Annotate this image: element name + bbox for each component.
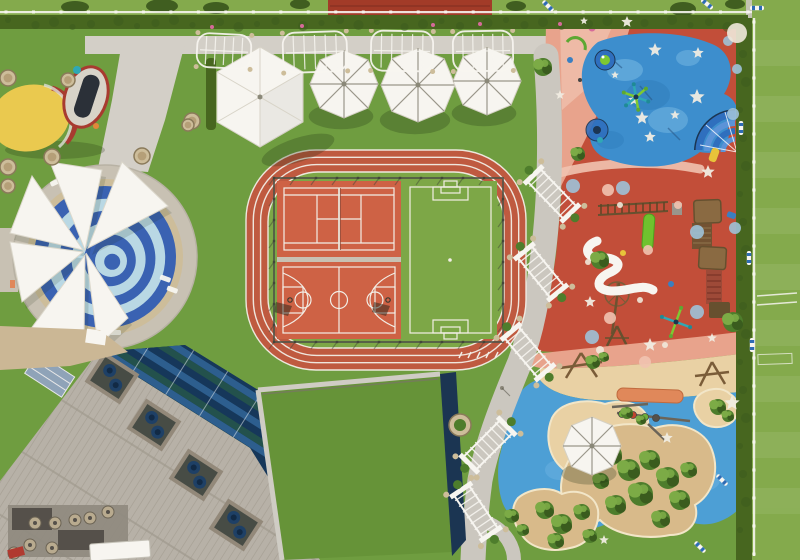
pole-stripe — [750, 347, 754, 350]
dot-white — [637, 297, 643, 303]
hedge-blob — [32, 21, 40, 29]
tower-roof — [694, 200, 722, 224]
hedge-blob — [418, 19, 428, 29]
dot-salmon — [602, 184, 614, 196]
aerial-photo-school-sports-complex — [0, 0, 800, 560]
spinner-tip — [660, 315, 664, 319]
planter-fill — [4, 163, 13, 172]
light-pole — [750, 6, 764, 10]
umbrella-hub — [416, 83, 421, 88]
light-pole — [739, 121, 743, 135]
planter-fill — [64, 76, 72, 84]
bush-sprig — [627, 461, 636, 470]
hedge-blob — [272, 17, 280, 25]
spinner-tip — [632, 82, 636, 86]
planter-fill — [138, 152, 147, 161]
hedge-blob — [641, 19, 649, 27]
bush-sprig — [577, 148, 583, 154]
hedge-blob — [169, 15, 179, 25]
flower-dot — [431, 23, 435, 27]
hedge-blob — [87, 20, 95, 28]
hedge-blob — [739, 302, 747, 310]
flower-dot — [558, 22, 562, 26]
fence-post — [753, 105, 756, 108]
pole-stripe — [752, 6, 755, 10]
tree-canopy — [506, 1, 526, 11]
hedge-blob — [741, 161, 751, 171]
pole-stripe — [747, 260, 751, 263]
planter-fill — [454, 419, 466, 431]
hedge-blob — [739, 134, 747, 142]
hedge-blob — [739, 386, 747, 394]
hedge-blob — [134, 23, 140, 29]
bush-sprig — [716, 401, 722, 407]
hedge-blob — [705, 18, 713, 26]
fence-post — [499, 11, 502, 14]
hedge-blob — [737, 275, 743, 281]
fence-post — [417, 11, 420, 14]
bush-sprig — [560, 516, 568, 524]
hedge-blob — [152, 19, 160, 27]
hedge-blob — [741, 77, 751, 87]
hedge-blob — [70, 24, 76, 30]
bush-sprig — [648, 452, 656, 460]
fence-post — [753, 469, 756, 472]
fence-post — [279, 11, 282, 14]
planter-fill — [185, 122, 192, 129]
hedge-blob — [456, 22, 464, 30]
hedge-blob — [739, 50, 747, 58]
right-fence-rail — [753, 18, 755, 556]
dot-blue — [727, 108, 739, 120]
bush-sprig — [640, 416, 644, 420]
right-hedge — [736, 18, 752, 560]
fence-post — [753, 329, 756, 332]
umbrella-hub — [485, 79, 490, 84]
lawn-panel — [258, 374, 452, 560]
hedge-blob — [49, 17, 59, 27]
light-pole — [750, 338, 754, 352]
pole-stripe — [750, 340, 754, 343]
planter-fill — [4, 182, 12, 190]
umbrella-hub — [590, 444, 595, 449]
water-frog-feature — [595, 50, 615, 70]
spiral-ring — [104, 254, 120, 270]
dot-salmon — [643, 245, 653, 255]
fence-post — [334, 11, 337, 14]
flower-dot — [478, 22, 482, 26]
beach-umbrella — [561, 417, 621, 485]
hedge-blob — [603, 16, 613, 26]
fence-post — [753, 217, 756, 220]
flower-dot — [300, 24, 304, 28]
hedge-blob — [737, 359, 743, 365]
bush-sprig — [727, 411, 732, 416]
planter-fill — [48, 153, 57, 162]
bush-sprig — [554, 535, 560, 541]
fence-post — [472, 11, 475, 14]
pole-stripe — [739, 123, 743, 126]
fence-post — [747, 11, 750, 14]
bush-sprig — [659, 512, 666, 519]
bush-sprig — [543, 503, 550, 510]
dot-white — [727, 23, 747, 43]
flower-dot — [210, 25, 214, 29]
water-spray-base — [586, 119, 608, 141]
orange-chair — [10, 280, 15, 288]
tree-canopy — [670, 2, 696, 16]
bush-sprig — [580, 506, 586, 512]
hedge-blob — [503, 17, 509, 23]
dot-blue — [566, 179, 580, 193]
bush-sprig — [598, 253, 605, 260]
fence-post — [114, 11, 117, 14]
hvac-fan-core — [73, 518, 77, 522]
fence-post — [753, 553, 756, 556]
mow-stripes — [752, 40, 800, 514]
green-slide — [642, 214, 655, 251]
spinner-tip — [636, 108, 640, 112]
spinner-tip — [679, 306, 683, 310]
fence-post — [197, 11, 200, 14]
spinner-tip — [688, 325, 692, 329]
hvac-fan-core — [53, 521, 57, 525]
red-roof-building — [328, 0, 492, 17]
hedge-blob — [667, 15, 677, 25]
fence-post — [753, 273, 756, 276]
center-spot — [448, 258, 452, 262]
hedge-blob — [234, 22, 244, 32]
spinner-tip — [646, 99, 650, 103]
pole-stripe — [739, 130, 743, 133]
fence-post — [307, 11, 310, 14]
hvac-fan-core — [33, 521, 37, 525]
hedge-blob — [336, 16, 344, 24]
fence-post — [753, 385, 756, 388]
bush-sprig — [626, 408, 631, 413]
hedge-blob — [374, 19, 380, 25]
spinner-tip — [622, 91, 626, 95]
orange-bench — [617, 388, 683, 403]
fence-post — [753, 245, 756, 248]
fence-post — [169, 11, 172, 14]
shade-umbrellas — [309, 47, 521, 134]
fence-post — [753, 413, 756, 416]
bush-sprig — [522, 525, 527, 530]
tunnel-decor — [73, 66, 81, 74]
bush-sprig — [589, 530, 595, 536]
fence-post — [527, 11, 530, 14]
entry-canopy — [85, 329, 107, 346]
bush-sprig — [592, 356, 598, 362]
fence-post — [554, 11, 557, 14]
hedge-blob — [114, 16, 124, 26]
court-divider — [277, 257, 401, 262]
bush-sprig — [731, 314, 739, 322]
light-pole — [747, 251, 751, 265]
dot-blue — [690, 225, 704, 239]
fence-post — [224, 11, 227, 14]
fence-post — [389, 11, 392, 14]
hvac-fan-core — [88, 516, 92, 520]
dot-blue — [616, 181, 630, 195]
fence-post — [753, 357, 756, 360]
hedge-blob — [483, 18, 493, 28]
hedge-blob — [538, 17, 548, 27]
bush-sprig — [666, 469, 675, 478]
fence-post — [142, 11, 145, 14]
sunken-lawn — [258, 372, 466, 560]
fence-post — [692, 11, 695, 14]
bush-sprig — [511, 510, 517, 516]
dot-salmon — [604, 312, 616, 324]
dot-blue — [690, 305, 704, 319]
dot-blue — [729, 222, 741, 234]
hedge-blob — [741, 497, 751, 507]
hedge-blob — [5, 17, 11, 23]
fence-post — [719, 11, 722, 14]
fence-post — [582, 11, 585, 14]
bush-sprig — [639, 484, 649, 494]
hedge-blob — [319, 20, 325, 26]
fence-post — [5, 11, 8, 14]
bush-sprig — [687, 464, 693, 470]
hedge-blob — [739, 470, 747, 478]
hedge-blob — [737, 527, 743, 533]
hedge-blob — [401, 23, 409, 31]
spinner-tip — [624, 103, 628, 107]
fence-post — [753, 189, 756, 192]
dot-white — [585, 259, 591, 265]
beam-stool — [653, 415, 660, 422]
hedge-blob — [439, 18, 445, 24]
hedge-blob — [741, 329, 751, 339]
hedge-blob — [739, 218, 747, 226]
fence-post — [444, 11, 447, 14]
hedge-blob — [521, 21, 529, 29]
hedge-blob — [688, 22, 694, 28]
hedge-blob — [254, 21, 260, 27]
pole-stripe — [747, 253, 751, 256]
fence-post — [753, 525, 756, 528]
dot-salmon — [639, 356, 651, 368]
dot-salmon — [674, 201, 682, 209]
hvac-fan-core — [106, 510, 110, 514]
fence-post — [32, 11, 35, 14]
fence-post — [753, 77, 756, 80]
hedge-blob — [216, 18, 224, 26]
dot-white — [662, 342, 668, 348]
fence-post — [753, 161, 756, 164]
fence-post — [609, 11, 612, 14]
umbrella-hub — [342, 82, 347, 87]
fence-post — [362, 11, 365, 14]
bush-sprig — [603, 353, 607, 357]
fence-post — [753, 497, 756, 500]
hedge-strip — [206, 58, 216, 130]
dot-blue — [732, 64, 742, 74]
hedge-blob — [354, 20, 364, 30]
bush-sprig — [541, 60, 548, 67]
hedge-blob — [737, 191, 743, 197]
fence-post — [87, 11, 90, 14]
planter-fill — [4, 74, 13, 83]
fence-post — [753, 49, 756, 52]
hvac-fan-core — [50, 546, 54, 550]
hedge-blob — [741, 413, 751, 423]
aerial-scene — [0, 0, 800, 560]
hedge-blob — [190, 22, 196, 28]
running-track — [246, 150, 526, 370]
spinner-tip — [669, 334, 673, 338]
pole-stripe — [759, 6, 762, 10]
fence-post — [252, 11, 255, 14]
bush-sprig — [678, 492, 686, 500]
spinner-hub — [674, 320, 679, 325]
bush-sprig — [614, 497, 622, 505]
fence-post — [753, 21, 756, 24]
dot-white — [617, 202, 623, 208]
tunnel-decor — [93, 123, 99, 129]
fence-post — [753, 301, 756, 304]
hedge-blob — [737, 443, 743, 449]
fence-post — [753, 133, 756, 136]
pool-light-patch — [648, 107, 688, 133]
spinner-tip — [644, 87, 648, 91]
fence-post — [664, 11, 667, 14]
fence-post — [753, 441, 756, 444]
dot-blue — [585, 330, 599, 344]
hvac-fan-core — [28, 543, 32, 547]
fence-post — [637, 11, 640, 14]
tower-roof — [698, 246, 726, 269]
spinner-hub — [634, 95, 639, 100]
fence-post — [59, 11, 62, 14]
